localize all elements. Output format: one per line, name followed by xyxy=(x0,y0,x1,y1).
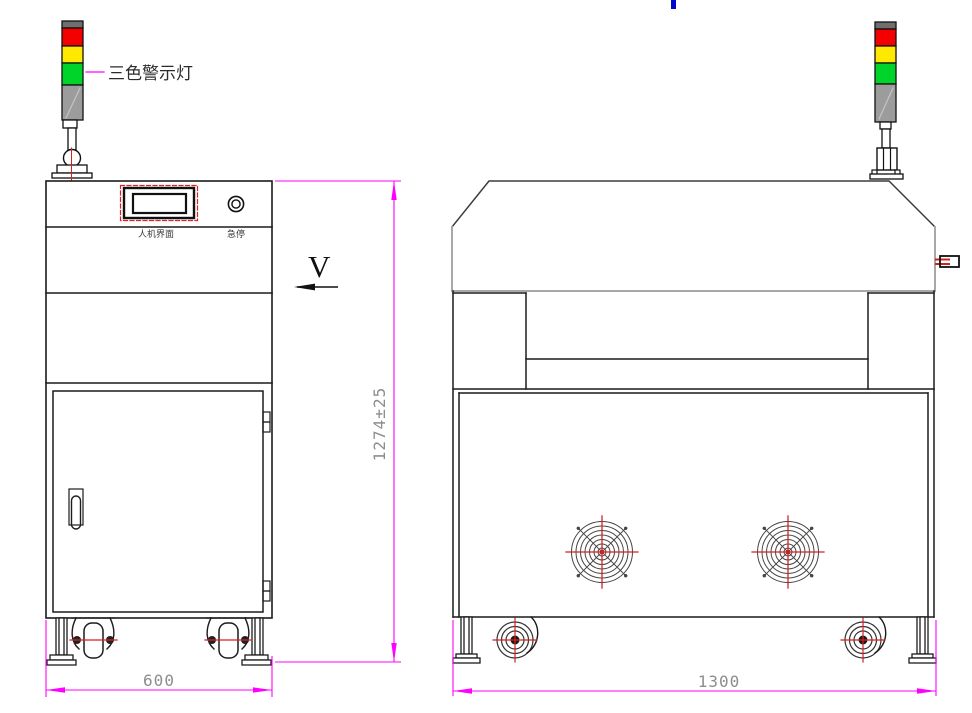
hinge-icon xyxy=(263,412,270,422)
side-body-outline xyxy=(46,181,272,618)
fan-grille-icon xyxy=(566,516,824,588)
front-view xyxy=(452,22,959,663)
caster-front-icon xyxy=(70,618,252,658)
tower-yellow-segment xyxy=(62,46,83,63)
hmi-screen xyxy=(121,186,198,221)
tower-gray-body xyxy=(62,85,83,120)
tower-label: 三色警示灯 xyxy=(108,64,193,83)
tower-green-segment xyxy=(62,63,83,85)
drawing-page: 三色警示灯 人机界面 急停 xyxy=(0,0,972,713)
hood-gray-edges xyxy=(452,227,935,291)
dim-arrow-icon xyxy=(391,181,396,200)
side-view: 三色警示灯 人机界面 急停 xyxy=(46,21,272,665)
side-connector xyxy=(936,256,959,267)
cabinet-door xyxy=(53,391,270,612)
engineering-drawing: 三色警示灯 人机界面 急停 xyxy=(0,0,972,713)
estop-button-icon xyxy=(228,196,243,211)
front-body-outline xyxy=(453,291,934,617)
caster-side-icon xyxy=(493,617,886,662)
signal-tower-icon-right xyxy=(870,22,903,179)
signal-tower-icon xyxy=(52,21,92,181)
estop-label: 急停 xyxy=(227,228,245,239)
hmi-label: 人机界面 xyxy=(138,228,174,239)
tower-red-segment xyxy=(62,28,83,46)
view-label: V xyxy=(308,249,331,284)
dimensions xyxy=(46,181,936,697)
blue-top-mark xyxy=(671,0,676,9)
arrowhead-icon xyxy=(294,284,315,291)
dim-overall-height: 1274±25 xyxy=(370,387,389,461)
hood-top-outline xyxy=(452,181,935,227)
view-direction-arrow: V xyxy=(294,249,338,290)
dim-side-width: 600 xyxy=(143,671,175,690)
dim-front-width: 1300 xyxy=(698,672,741,691)
